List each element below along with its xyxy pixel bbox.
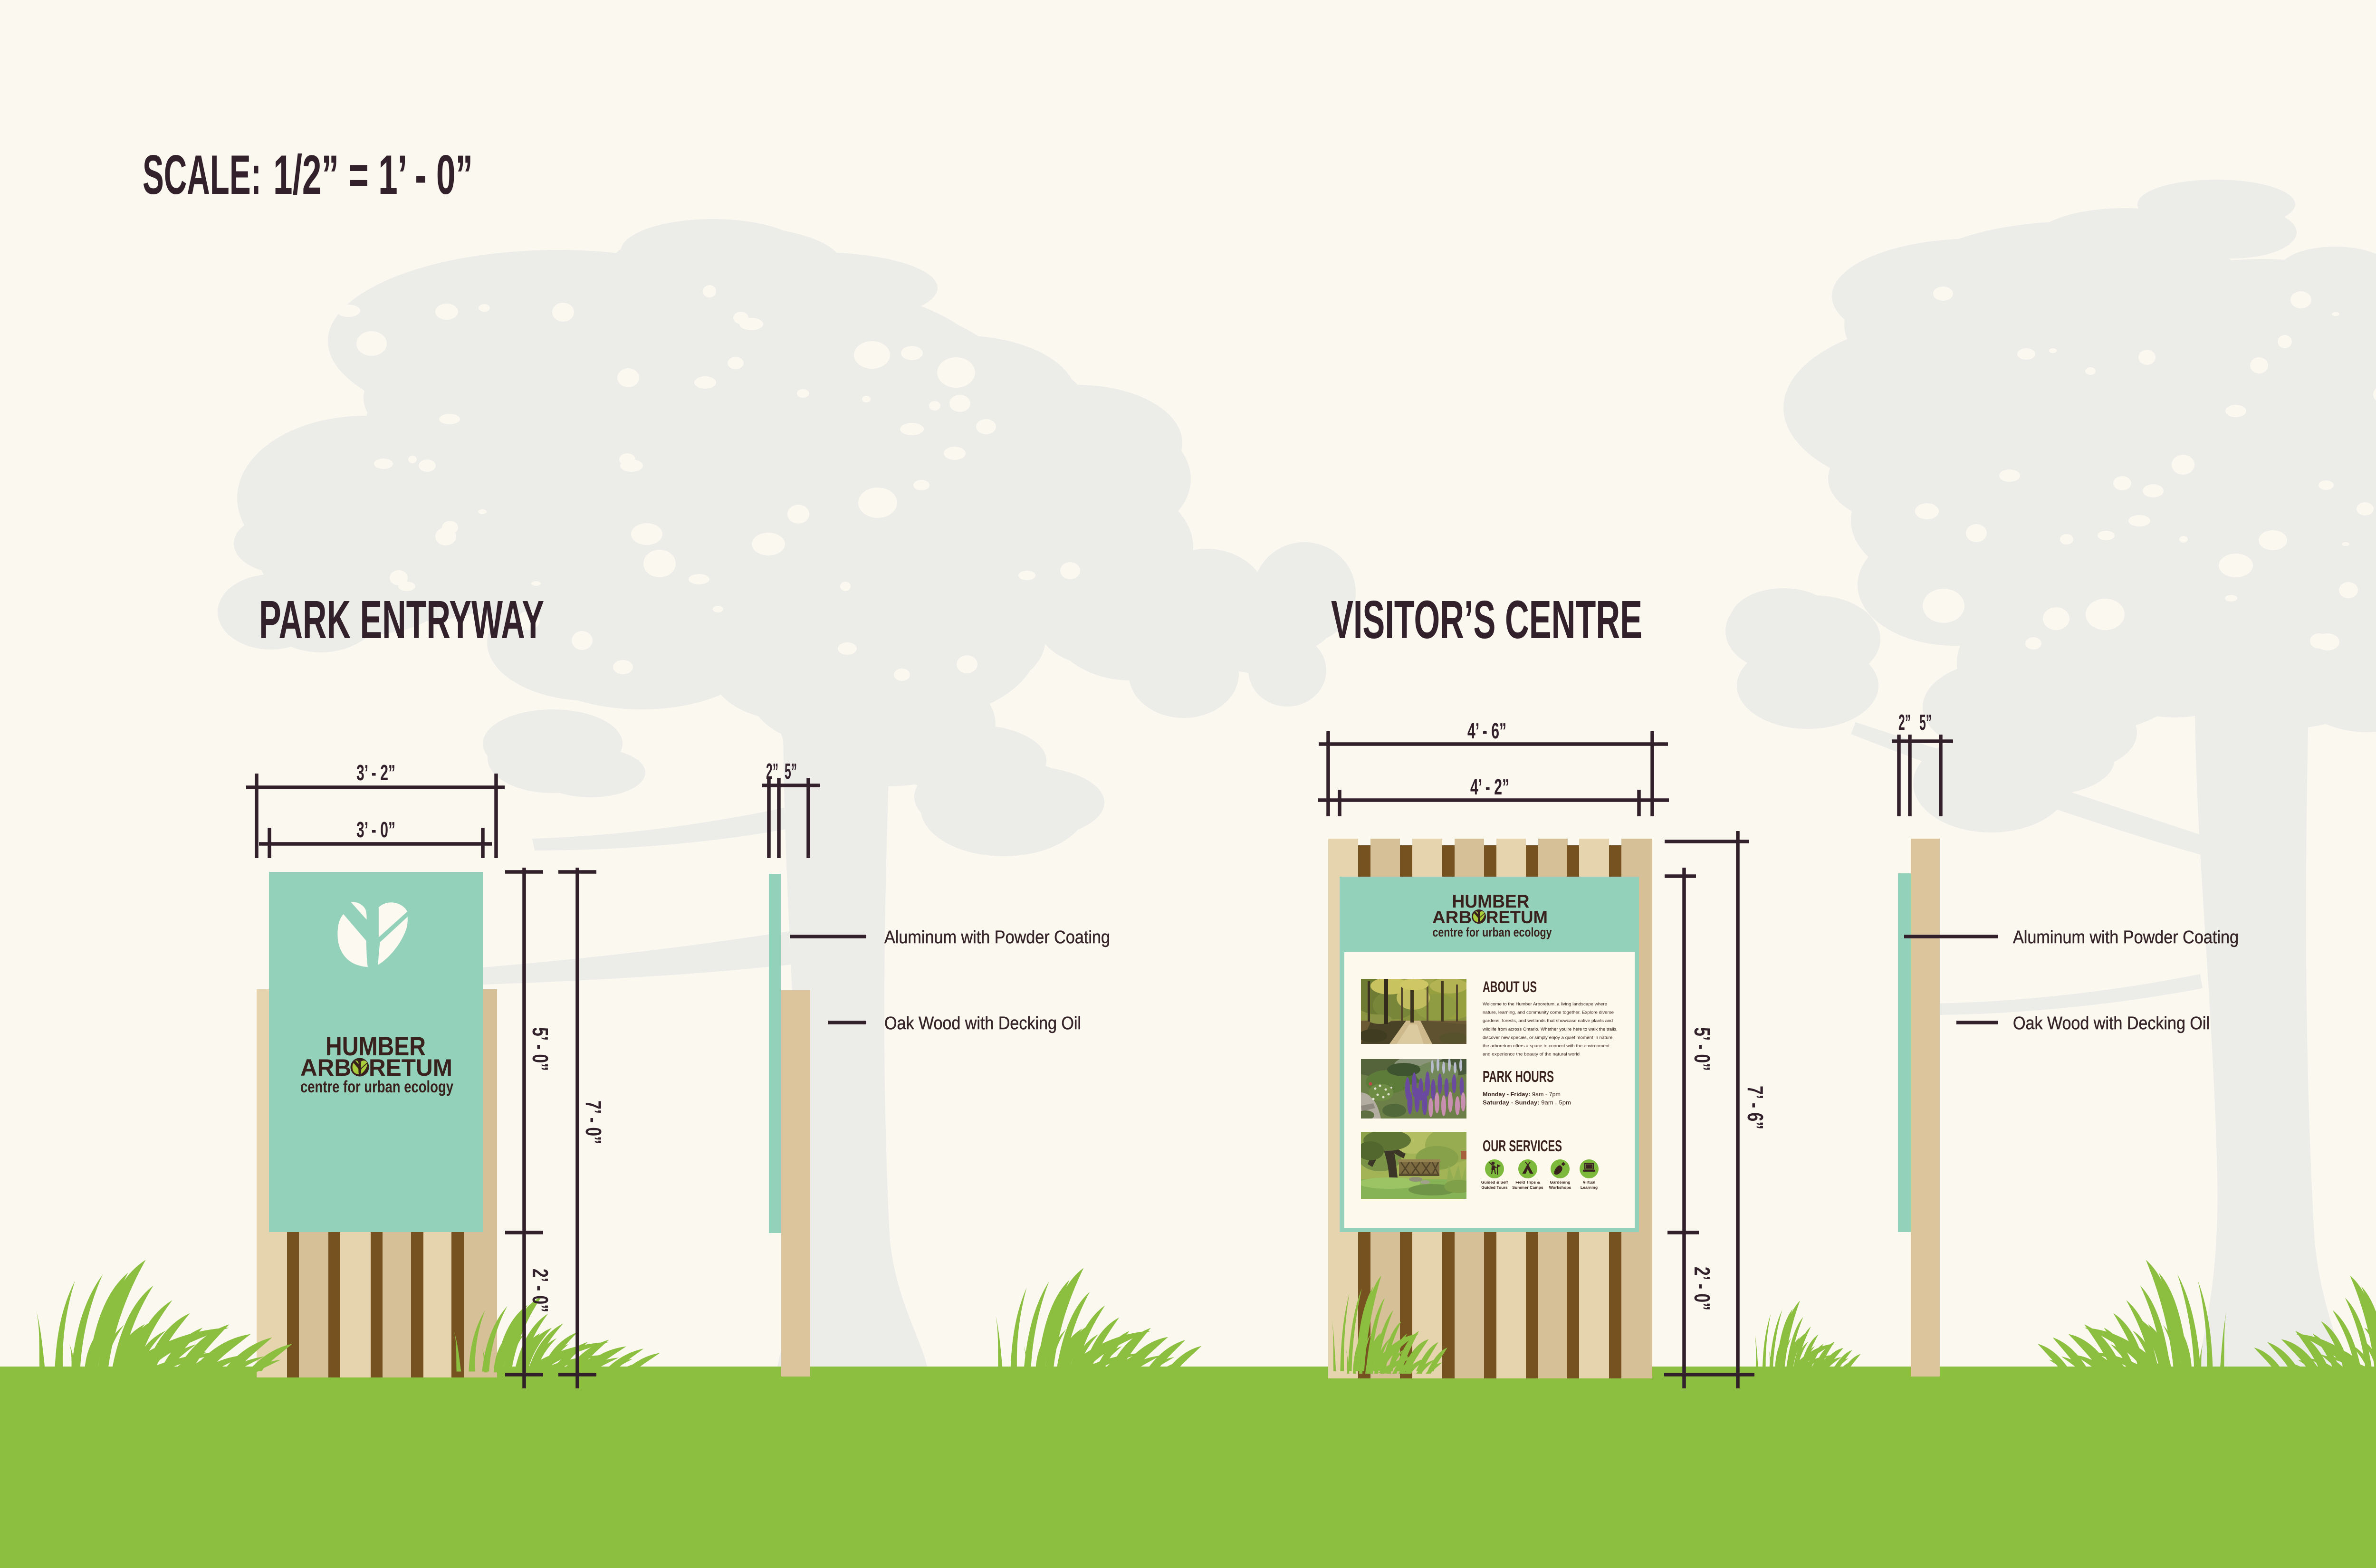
svg-text:Saturday - Sunday: 9am - 5pm: Saturday - Sunday: 9am - 5pm xyxy=(1483,1100,1571,1106)
svg-text:centre for urban ecology: centre for urban ecology xyxy=(300,1078,453,1096)
svg-text:7’ - 0”: 7’ - 0” xyxy=(581,1100,606,1144)
svg-text:3’ - 2”: 3’ - 2” xyxy=(356,760,395,785)
svg-text:2”: 2” xyxy=(1898,710,1911,735)
svg-text:Oak Wood with Decking Oil: Oak Wood with Decking Oil xyxy=(2013,1013,2210,1033)
svg-text:PARK ENTRYWAY: PARK ENTRYWAY xyxy=(259,590,544,650)
svg-text:OUR SERVICES: OUR SERVICES xyxy=(1483,1137,1562,1155)
svg-text:1/2” = 1’ - 0”: 1/2” = 1’ - 0” xyxy=(273,143,473,206)
svg-text:3’ - 0”: 3’ - 0” xyxy=(356,817,395,842)
svg-text:discover new species, or simpl: discover new species, or simply enjoy a … xyxy=(1483,1035,1614,1040)
svg-text:Monday - Friday: 9am - 7pm: Monday - Friday: 9am - 7pm xyxy=(1483,1091,1561,1098)
svg-text:5’ - 0”: 5’ - 0” xyxy=(528,1027,553,1071)
svg-text:7’ - 6”: 7’ - 6” xyxy=(1743,1086,1768,1129)
svg-text:5’ - 0”: 5’ - 0” xyxy=(1690,1027,1715,1071)
svg-text:Gardening: Gardening xyxy=(1550,1180,1571,1185)
svg-text:centre for urban ecology: centre for urban ecology xyxy=(1433,925,1552,939)
svg-text:2”: 2” xyxy=(766,759,778,784)
svg-text:VISITOR’S CENTRE: VISITOR’S CENTRE xyxy=(1331,590,1642,650)
svg-text:ABOUT US: ABOUT US xyxy=(1483,978,1537,995)
svg-text:Field Trips &: Field Trips & xyxy=(1515,1180,1540,1185)
svg-text:Aluminum with Powder Coating: Aluminum with Powder Coating xyxy=(884,927,1110,947)
svg-text:Guided Tours: Guided Tours xyxy=(1481,1185,1507,1190)
svg-text:the arboretum offers a space t: the arboretum offers a space to connect … xyxy=(1483,1043,1610,1048)
svg-text:wildlife from across Ontario.: wildlife from across Ontario. Whether yo… xyxy=(1482,1027,1618,1032)
svg-text:5”: 5” xyxy=(1919,710,1932,735)
svg-text:SCALE:: SCALE: xyxy=(143,143,261,206)
svg-text:Aluminum with Powder Coating: Aluminum with Powder Coating xyxy=(2013,927,2239,947)
svg-text:Virtual: Virtual xyxy=(1583,1180,1596,1185)
svg-text:4’ - 6”: 4’ - 6” xyxy=(1467,718,1506,743)
svg-text:RETUM: RETUM xyxy=(1486,908,1548,927)
svg-text:ARB: ARB xyxy=(300,1054,351,1081)
svg-text:2’ - 0”: 2’ - 0” xyxy=(528,1269,553,1312)
svg-text:Welcome to the Humber Arboretu: Welcome to the Humber Arboretum, a livin… xyxy=(1483,1002,1607,1006)
svg-text:Learning: Learning xyxy=(1581,1185,1598,1190)
svg-text:Guided & Self: Guided & Self xyxy=(1481,1180,1508,1185)
svg-text:2’ - 0”: 2’ - 0” xyxy=(1690,1267,1715,1310)
svg-text:ARB: ARB xyxy=(1432,908,1472,927)
svg-text:5”: 5” xyxy=(785,759,797,784)
svg-text:gardens, forests, and wetlands: gardens, forests, and wetlands that show… xyxy=(1483,1018,1613,1023)
svg-text:4’ - 2”: 4’ - 2” xyxy=(1470,774,1509,799)
svg-text:Summer Camps: Summer Camps xyxy=(1512,1185,1543,1190)
svg-text:RETUM: RETUM xyxy=(369,1054,452,1081)
svg-text:Oak Wood with Decking Oil: Oak Wood with Decking Oil xyxy=(884,1013,1081,1033)
svg-text:Workshops: Workshops xyxy=(1549,1185,1571,1190)
svg-text:nature, learning, and communit: nature, learning, and community come tog… xyxy=(1483,1010,1614,1015)
svg-text:and experience the beauty of t: and experience the beauty of the natural… xyxy=(1483,1052,1580,1057)
svg-text:PARK HOURS: PARK HOURS xyxy=(1483,1068,1554,1085)
